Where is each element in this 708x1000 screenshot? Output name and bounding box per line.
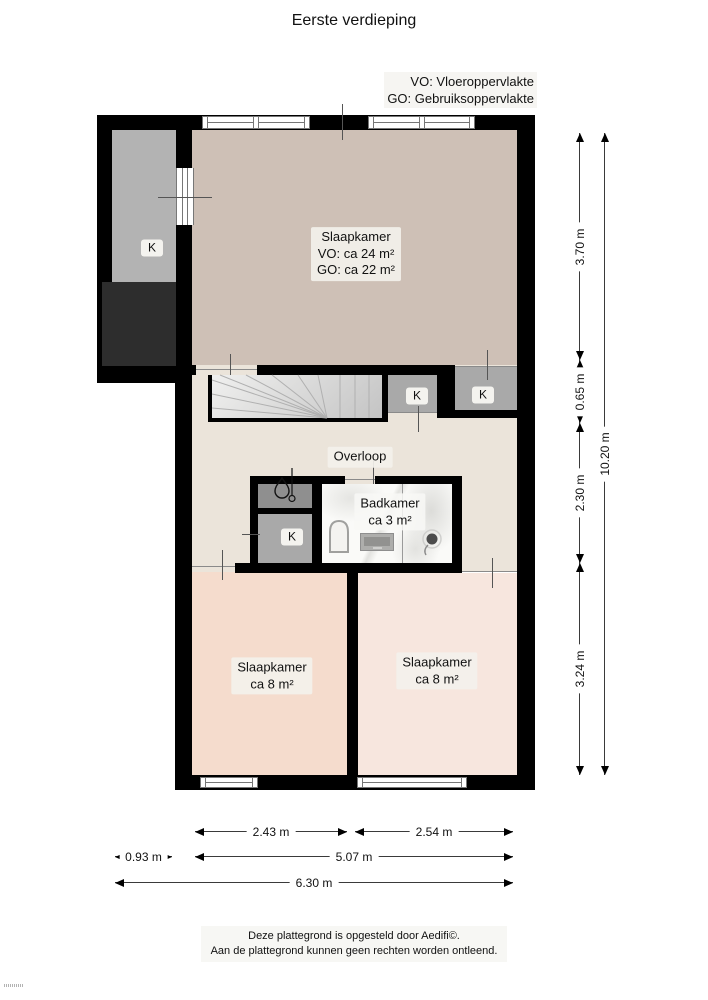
- footer-line1: Deze plattegrond is opgesteld door Aedif…: [211, 929, 498, 944]
- closet-k1-opening: [388, 412, 437, 413]
- wall-k2-bottom: [438, 410, 517, 418]
- dark-storage: [102, 282, 176, 366]
- arrow-right-icon: [504, 879, 513, 887]
- dimension-bottom-2: 2.54 m: [355, 825, 513, 838]
- window-cap: [202, 116, 208, 129]
- arrow-down-icon: [576, 766, 584, 775]
- dim-label: 2.43 m: [247, 825, 296, 839]
- closet-label-k1: K: [406, 388, 428, 405]
- room-label-bedroom-main: Slaapkamer VO: ca 24 m² GO: ca 22 m²: [311, 227, 401, 281]
- dim-label: 2.30 m: [572, 469, 588, 518]
- watermark: [4, 984, 24, 987]
- door-opening-bathroom: [345, 479, 375, 480]
- dimension-bottom-1: 2.43 m: [195, 825, 347, 838]
- boiler-flame-icon: [270, 466, 300, 506]
- dim-label: 0.93 m: [119, 850, 168, 864]
- dim-label: 0.65 m: [572, 367, 588, 416]
- window-cap: [469, 116, 475, 129]
- dim-label: 6.30 m: [290, 876, 339, 890]
- dimension-bottom-total: 6.30 m: [115, 876, 513, 889]
- closet-k2-opening: [455, 366, 517, 367]
- room-area: ca 8 m²: [402, 671, 471, 688]
- arrow-up-icon: [576, 133, 584, 142]
- door-opening-bedroom-right: [462, 571, 517, 572]
- vanity-handle: [373, 547, 382, 549]
- dim-label: 3.24 m: [572, 645, 588, 694]
- arrow-right-icon: [504, 828, 513, 836]
- dim-label: 10.20 m: [597, 426, 613, 481]
- footer-disclaimer: Deze plattegrond is opgesteld door Aedif…: [201, 926, 508, 962]
- window-cap: [200, 777, 206, 788]
- dim-tick: [487, 350, 488, 380]
- dim-tick: [418, 406, 419, 432]
- arrow-down-icon: [576, 554, 584, 563]
- door-opening-bedroom-left: [192, 566, 235, 567]
- room-label-bedroom-left: Slaapkamer ca 8 m²: [231, 657, 312, 694]
- wall-left-lower: [175, 383, 192, 775]
- footer-line2: Aan de plattegrond kunnen geen rechten w…: [211, 944, 498, 959]
- room-label-bedroom-right: Slaapkamer ca 8 m²: [396, 652, 477, 689]
- dimension-bottom-3: 0.93 m: [115, 850, 172, 863]
- door-opening-bedroom-main: [196, 365, 257, 375]
- window-cap: [304, 116, 310, 129]
- arrow-left-icon: [115, 879, 124, 887]
- wall-bath-top-right: [375, 476, 462, 484]
- window-cap: [368, 116, 374, 129]
- room-name: Slaapkamer: [317, 229, 395, 246]
- arrow-down-icon: [601, 766, 609, 775]
- shower-icon: [420, 526, 446, 556]
- wall-bedrooms-divider: [347, 563, 358, 775]
- closet-label-k3: K: [281, 529, 303, 546]
- threshold-line: [196, 369, 257, 370]
- room-area: ca 8 m²: [237, 676, 306, 693]
- arrow-left-icon: [195, 853, 204, 861]
- dimension-right-2: 0.65 m: [573, 360, 586, 423]
- window-glass-line: [357, 782, 467, 783]
- dim-tick: [242, 534, 260, 535]
- wall-bath-right: [452, 476, 462, 566]
- arrow-left-icon: [355, 828, 364, 836]
- closet-label-k2: K: [472, 387, 494, 404]
- floorplan-page: Eerste verdieping VO: Vloeroppervlakte G…: [0, 0, 708, 1000]
- room-name: Overloop: [334, 449, 387, 466]
- staircase: [208, 375, 382, 422]
- arrow-left-icon: [195, 828, 204, 836]
- dimension-right-3: 2.30 m: [573, 423, 586, 563]
- dimension-bottom-4: 5.07 m: [195, 850, 513, 863]
- dim-label: 3.70 m: [572, 222, 588, 271]
- dimension-right-1: 3.70 m: [573, 133, 586, 360]
- arrow-right-icon: [504, 853, 513, 861]
- wall-right: [517, 115, 535, 790]
- dim-tick: [492, 558, 493, 588]
- sink-vanity: [360, 533, 394, 551]
- window-top-left: [202, 116, 310, 129]
- wall-bath-left: [250, 476, 258, 572]
- dim-label: 5.07 m: [330, 850, 379, 864]
- wall-closet-bath: [312, 476, 322, 563]
- window-mullion: [419, 116, 425, 129]
- room-vo: VO: ca 24 m²: [317, 246, 395, 263]
- window-bottom-left: [200, 777, 258, 788]
- staircase-steps: [212, 375, 382, 418]
- sink-basin: [364, 537, 390, 546]
- window-cap: [252, 777, 258, 788]
- dim-label: 2.54 m: [410, 825, 459, 839]
- room-go: GO: ca 22 m²: [317, 262, 395, 279]
- room-label-landing: Overloop: [328, 447, 393, 468]
- dim-tick: [158, 197, 212, 198]
- window-cap: [357, 777, 363, 788]
- room-label-bathroom: Badkamer ca 3 m²: [354, 493, 425, 530]
- window-glass-line: [200, 782, 258, 783]
- room-name: Badkamer: [360, 495, 419, 512]
- window-top-right: [368, 116, 475, 129]
- closet-label-attic: K: [141, 240, 163, 257]
- window-mullion: [253, 116, 259, 129]
- room-name: Slaapkamer: [402, 654, 471, 671]
- arrow-up-icon: [576, 563, 584, 572]
- toilet-icon: [325, 518, 353, 555]
- room-name: Slaapkamer: [237, 659, 306, 676]
- window-bottom-right: [357, 777, 467, 788]
- dimension-right-total: 10.20 m: [598, 133, 611, 775]
- dimension-right-4: 3.24 m: [573, 563, 586, 775]
- arrow-right-icon: [338, 828, 347, 836]
- arrow-up-icon: [576, 423, 584, 432]
- arrow-up-icon: [601, 133, 609, 142]
- arrow-down-icon: [576, 351, 584, 360]
- dim-tick: [222, 550, 223, 580]
- attic-closet: [112, 130, 176, 282]
- window-cap: [461, 777, 467, 788]
- footer: Deze plattegrond is opgesteld door Aedif…: [0, 926, 708, 962]
- dim-tick: [342, 104, 343, 140]
- room-area: ca 3 m²: [360, 512, 419, 529]
